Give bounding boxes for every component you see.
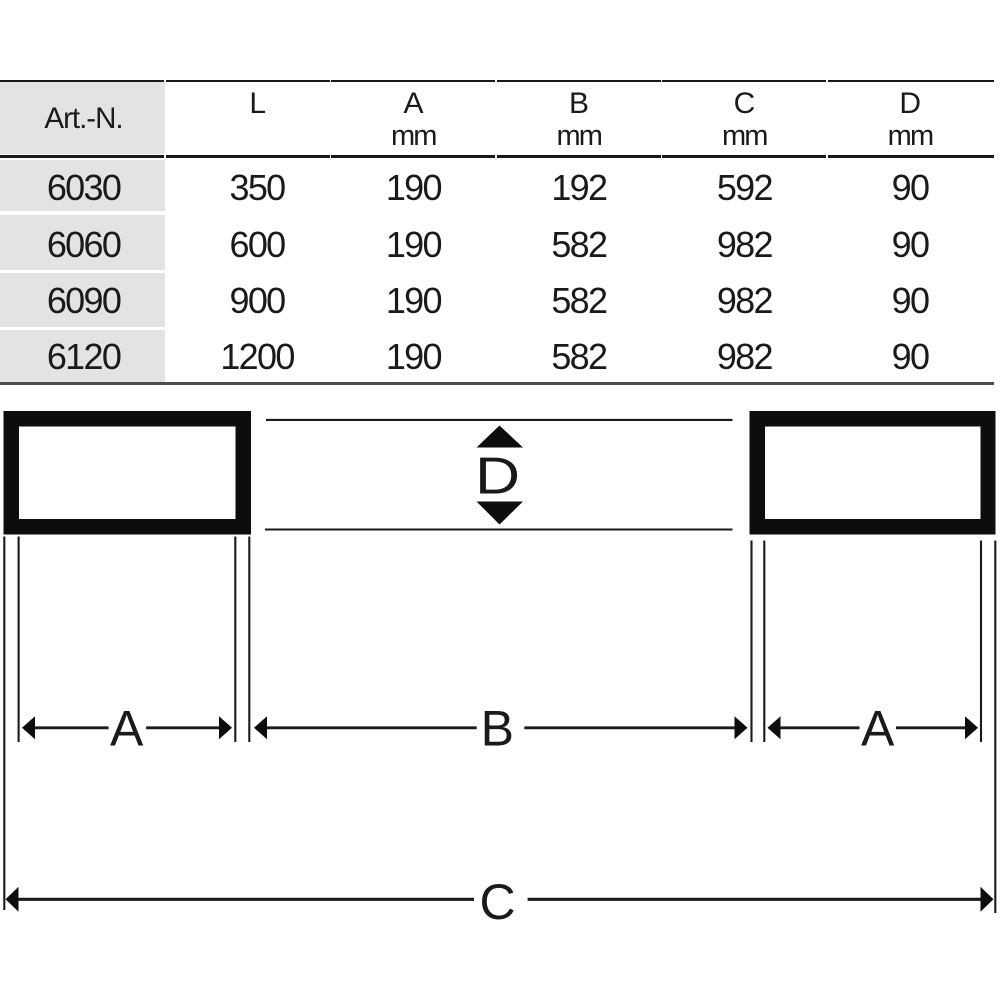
svg-text:B: B [481, 700, 514, 756]
svg-text:A: A [110, 700, 144, 756]
svg-text:D: D [475, 447, 520, 505]
svg-text:C: C [480, 874, 516, 930]
svg-text:A: A [861, 700, 895, 756]
